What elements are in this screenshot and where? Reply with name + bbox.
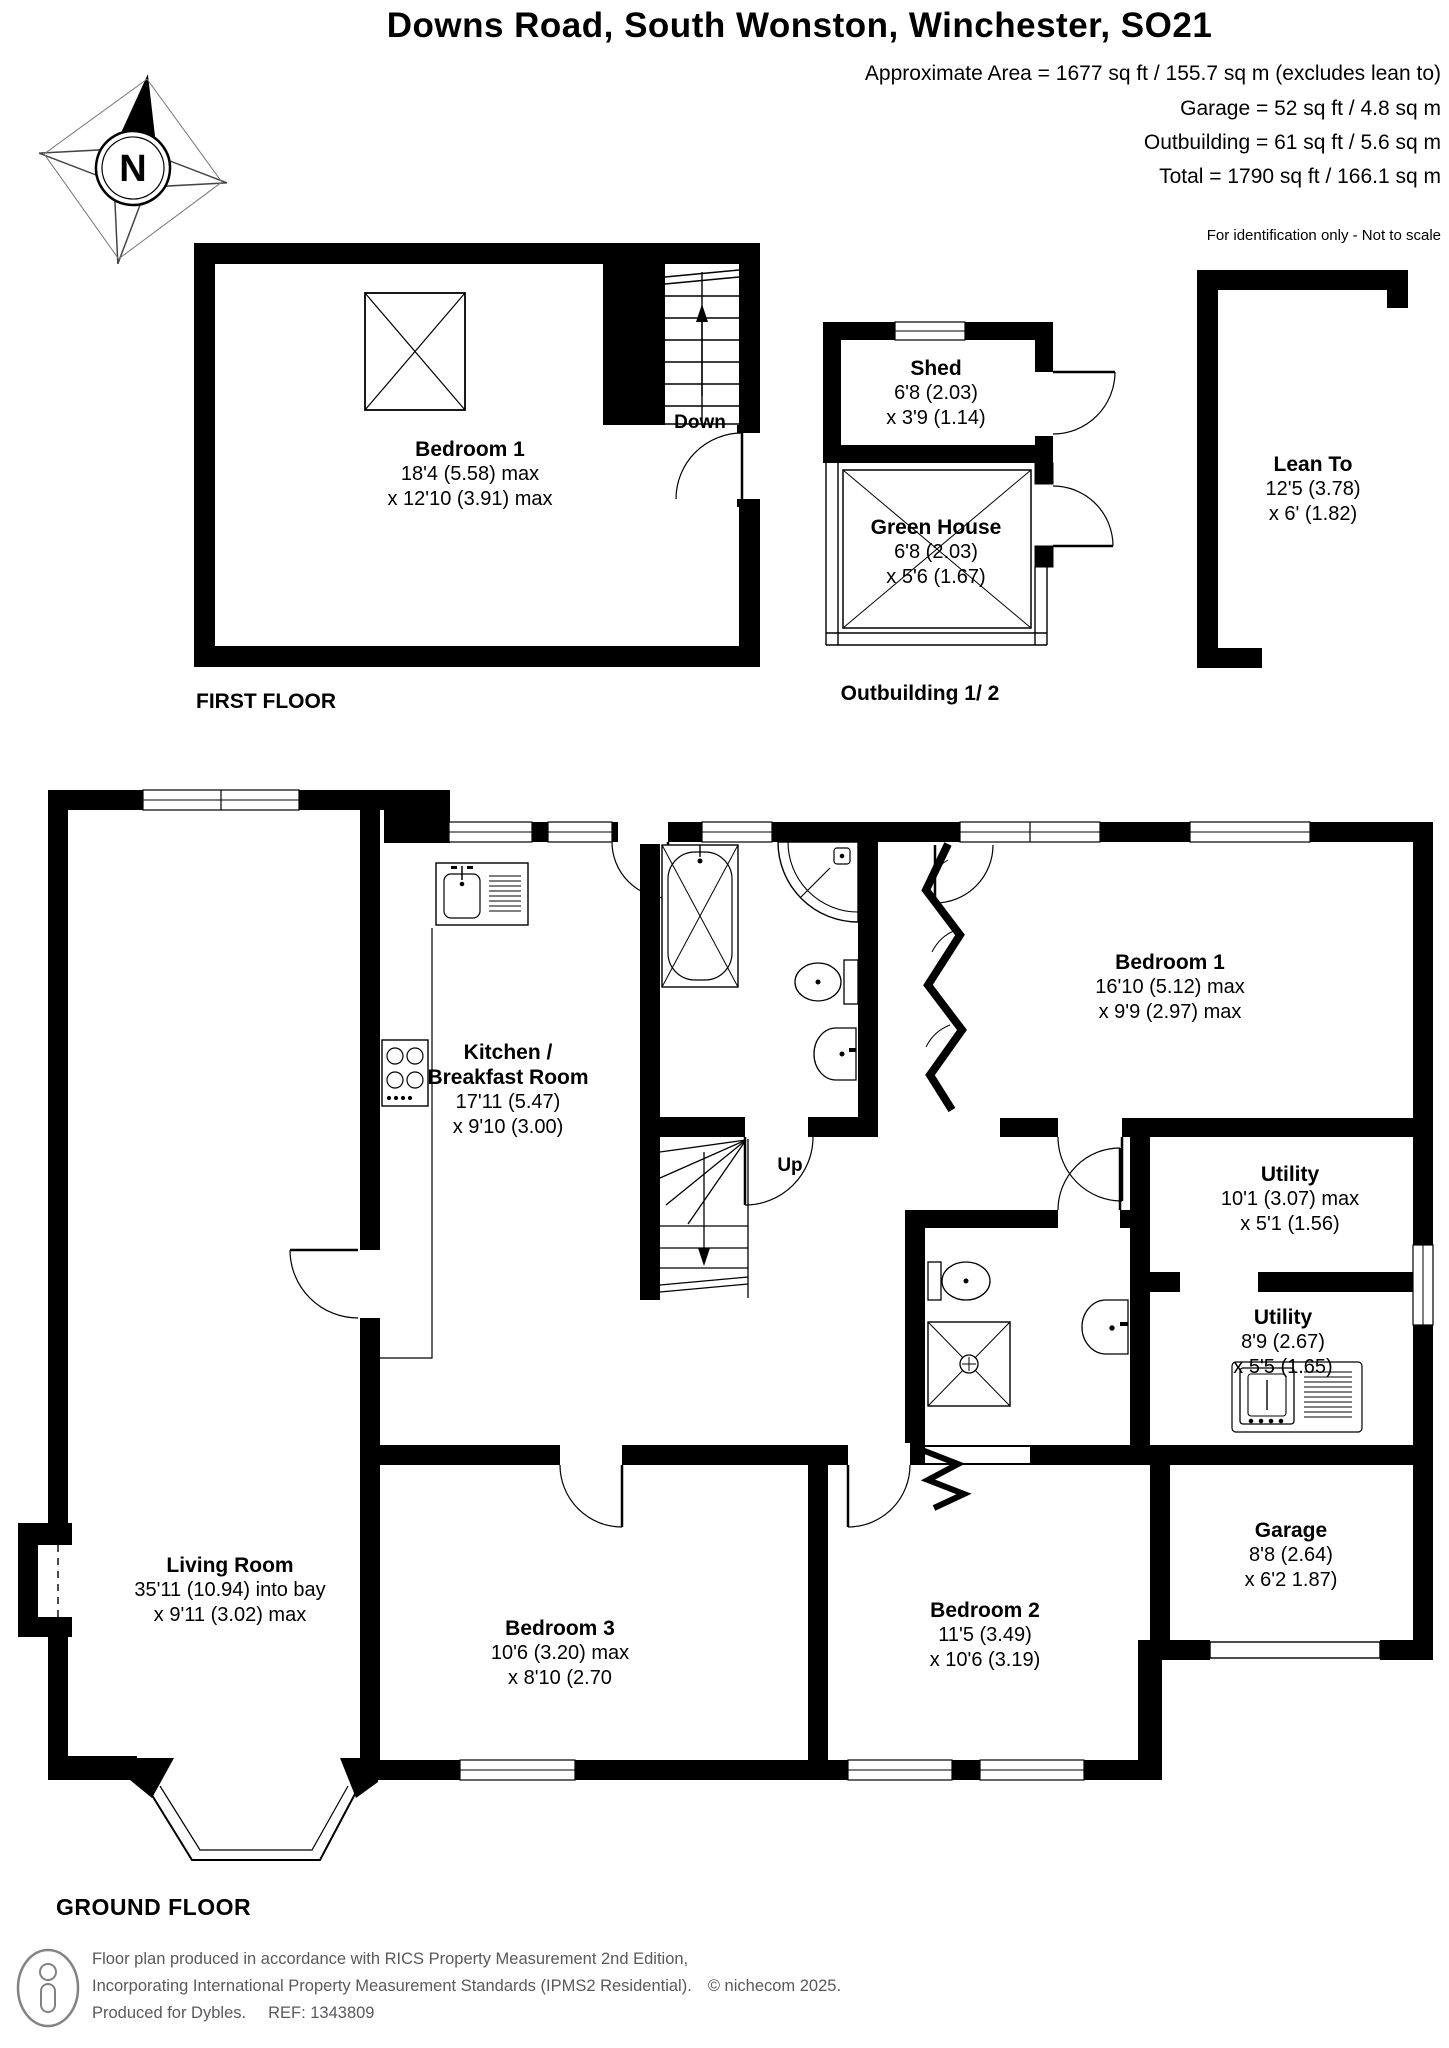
wardrobe-zigzag-walls: [922, 844, 1030, 1508]
footer-text: Floor plan produced in accordance with R…: [92, 1946, 841, 2027]
room-label-gf-bedroom1: Bedroom 1 16'10 (5.12) max x 9'9 (2.97) …: [1095, 950, 1244, 1025]
ground-floor-stairs: [660, 1137, 748, 1298]
footer-ref: REF: 1343809: [268, 2004, 374, 2022]
shed-window: [895, 322, 965, 340]
garage-area-line: Garage = 52 sq ft / 4.8 sq m: [1180, 97, 1441, 121]
basin2-icon: [1082, 1300, 1128, 1354]
bay-window: [130, 1758, 378, 1860]
compass-n: N: [119, 148, 146, 190]
toilet2-icon: [928, 1262, 990, 1300]
floorplan-page: N: [0, 0, 1449, 2048]
ground-floor-label: GROUND FLOOR: [56, 1894, 251, 1921]
chimney-niche: [38, 1545, 80, 1617]
total-area-line: Total = 1790 sq ft / 166.1 sq m: [1159, 165, 1441, 189]
page-title: Downs Road, South Wonston, Winchester, S…: [150, 6, 1449, 46]
first-floor-stairs: [665, 270, 739, 424]
room-label-bedroom3: Bedroom 3 10'6 (3.20) max x 8'10 (2.70: [491, 1616, 629, 1691]
room-label-ff-bedroom1: Bedroom 1 18'4 (5.58) max x 12'10 (3.91)…: [387, 437, 552, 512]
room-label-garage: Garage 8'8 (2.64) x 6'2 1.87): [1245, 1518, 1338, 1593]
outbuilding-label: Outbuilding 1/ 2: [841, 682, 1000, 706]
hob-icon: [382, 1040, 428, 1106]
nichecom-logo-icon: [18, 1950, 78, 2026]
sink-icon: [436, 863, 528, 925]
outbuilding-area-line: Outbuilding = 61 sq ft / 5.6 sq m: [1144, 131, 1441, 155]
footer-line1: Floor plan produced in accordance with R…: [92, 1946, 841, 1973]
footer-line2: Incorporating International Property Mea…: [92, 1973, 841, 2000]
footer-copyright: © nichecom 2025.: [708, 1977, 841, 1995]
skylight-icon: [365, 293, 465, 410]
room-label-utility2: Utility 8'9 (2.67) x 5'5 (1.65): [1233, 1305, 1332, 1380]
toilet-icon: [795, 960, 858, 1004]
basin-icon: [814, 1028, 856, 1080]
kitchen-counter: [380, 928, 432, 1358]
room-label-bedroom2: Bedroom 2 11'5 (3.49) x 10'6 (3.19): [930, 1598, 1041, 1673]
room-label-shed: Shed 6'8 (2.03) x 3'9 (1.14): [886, 356, 985, 431]
room-label-lean-to: Lean To 12'5 (3.78) x 6' (1.82): [1266, 452, 1361, 527]
room-label-kitchen: Kitchen / Breakfast Room 17'11 (5.47) x …: [427, 1040, 588, 1140]
shed-door: [1053, 372, 1115, 434]
bath-icon: [662, 845, 738, 987]
scale-disclaimer: For identification only - Not to scale: [1207, 227, 1441, 244]
first-floor-label: FIRST FLOOR: [196, 690, 336, 714]
footer-line3: Produced for Dybles.REF: 1343809: [92, 2000, 841, 2027]
ground-floor-windows: [143, 790, 1433, 1780]
shower-icon: [778, 842, 858, 922]
first-floor-stair-door: [676, 425, 760, 507]
shower-tray-icon: [928, 1322, 1010, 1406]
room-label-greenhouse: Green House 6'8 (2.03) x 5'6 (1.67): [871, 515, 1002, 590]
room-label-utility1: Utility 10'1 (3.07) max x 5'1 (1.56): [1221, 1162, 1359, 1237]
stairs-up-label: Up: [777, 1155, 802, 1177]
stairs-down-label: Down: [674, 412, 726, 434]
room-label-living-room: Living Room 35'11 (10.94) into bay x 9'1…: [134, 1553, 325, 1628]
approx-area-line: Approximate Area = 1677 sq ft / 155.7 sq…: [865, 62, 1441, 86]
